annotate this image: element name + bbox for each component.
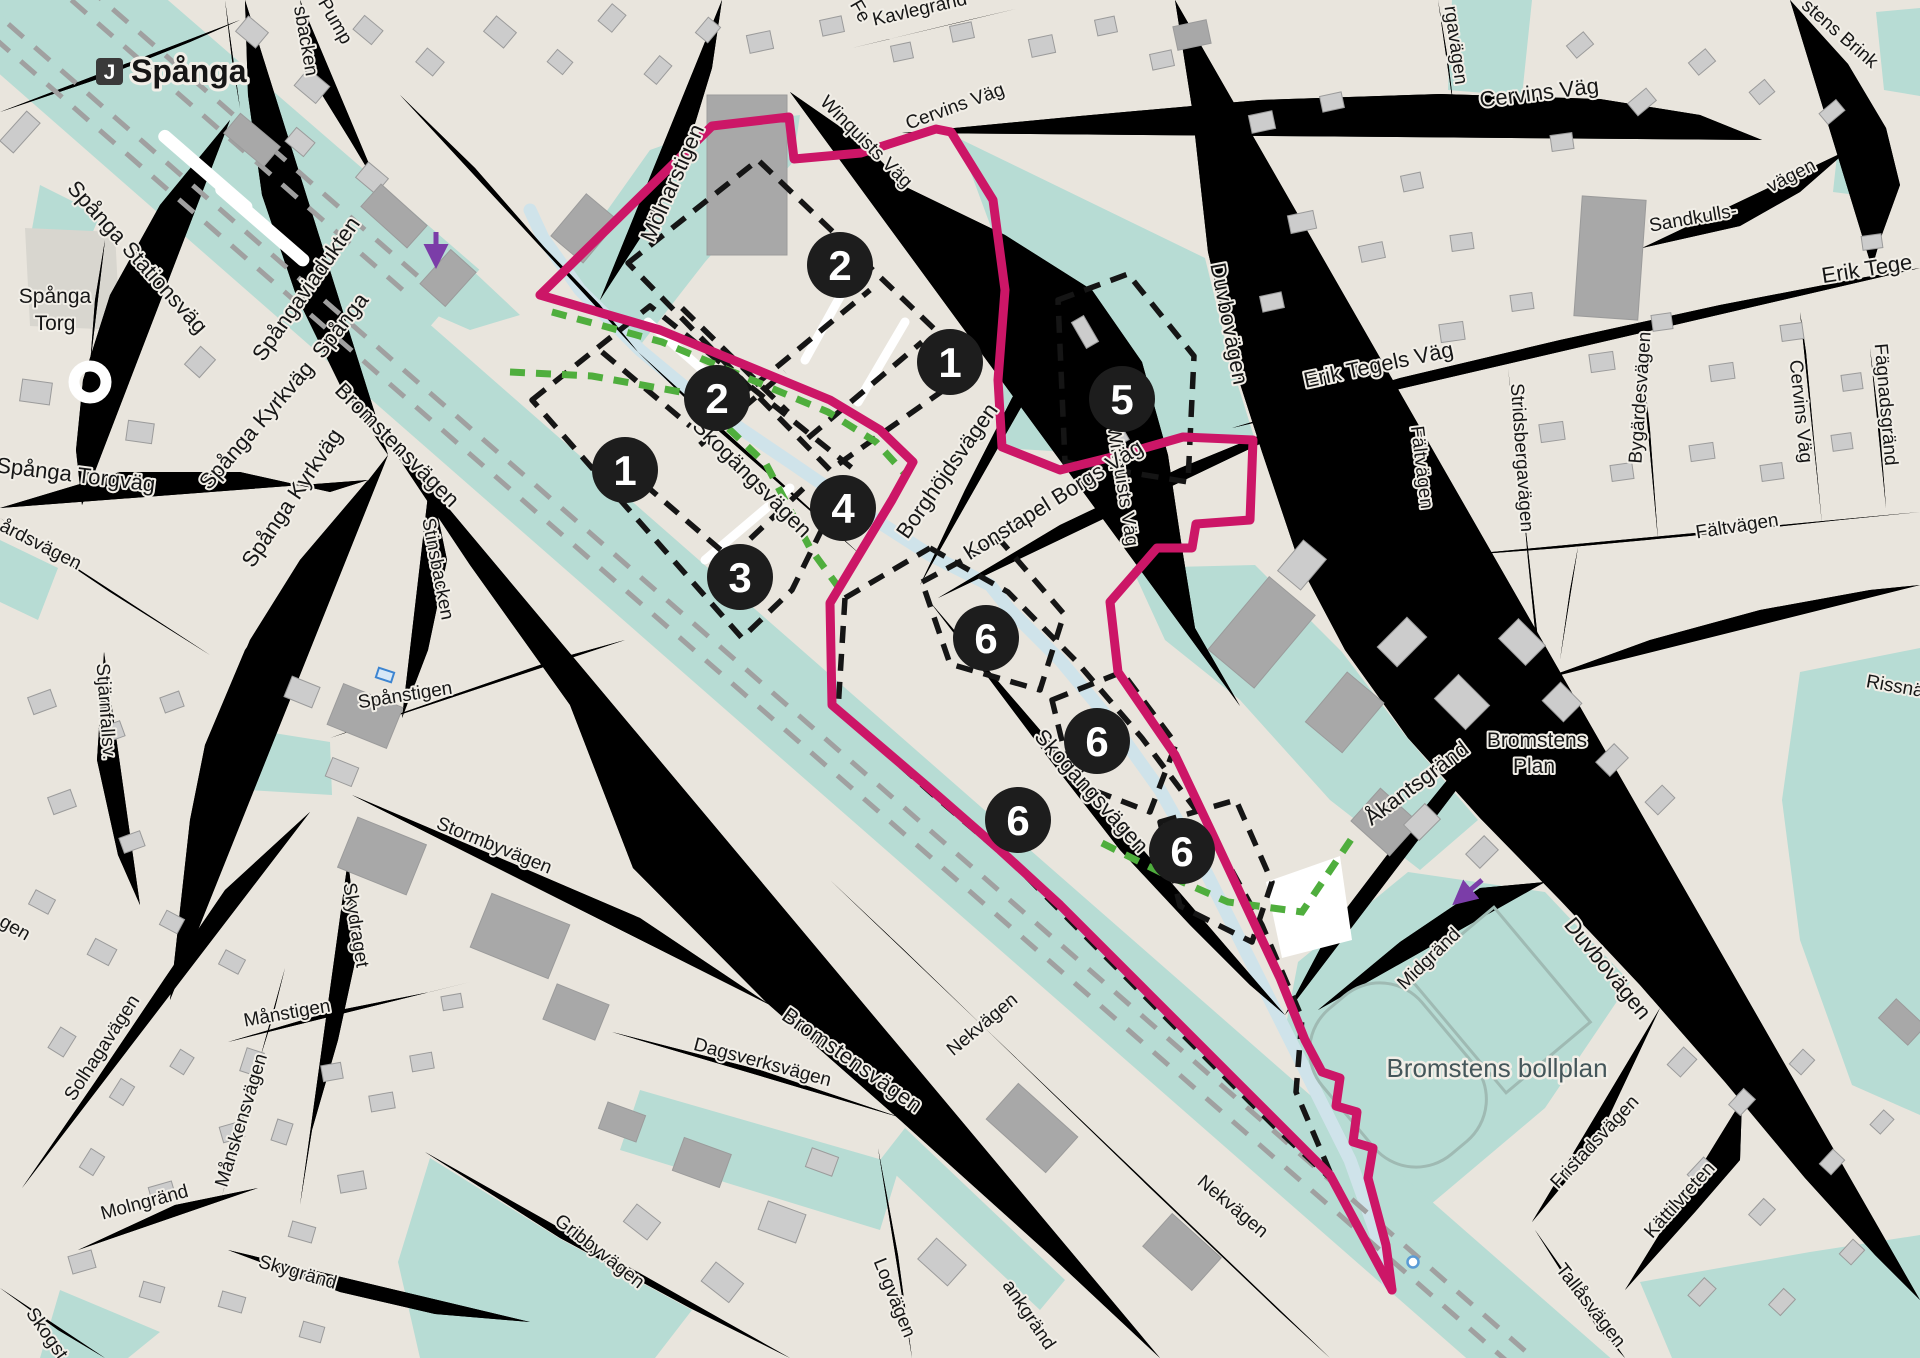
marker-3: 3 xyxy=(707,544,773,610)
marker-6-c: 6 xyxy=(985,787,1051,853)
svg-text:5: 5 xyxy=(1110,376,1133,423)
place-label-bromstens-bollplan: Bromstens bollplan xyxy=(1386,1053,1607,1083)
svg-text:6: 6 xyxy=(1170,828,1193,875)
svg-text:6: 6 xyxy=(974,615,997,662)
marker-4: 4 xyxy=(810,475,876,541)
marker-6-b: 6 xyxy=(1064,708,1130,774)
svg-text:6: 6 xyxy=(1006,797,1029,844)
place-label-spanga-torg-1: Spånga xyxy=(19,285,92,308)
svg-text:2: 2 xyxy=(828,242,851,289)
svg-text:1: 1 xyxy=(613,447,636,494)
marker-6-d: 6 xyxy=(1149,818,1215,884)
svg-text:6: 6 xyxy=(1085,718,1108,765)
svg-text:3: 3 xyxy=(728,554,751,601)
map-canvas: Spånga Stationsväg Spånga Torg Spånga To… xyxy=(0,0,1920,1358)
marker-2-left: 2 xyxy=(684,365,750,431)
marker-5: 5 xyxy=(1089,366,1155,432)
station-name: Spånga xyxy=(131,53,247,89)
marker-1-top: 1 xyxy=(917,329,983,395)
marker-1-left: 1 xyxy=(592,437,658,503)
svg-text:4: 4 xyxy=(831,485,855,532)
station-badge: J Spånga xyxy=(96,53,247,89)
marker-2-top: 2 xyxy=(807,232,873,298)
svg-text:1: 1 xyxy=(938,339,961,386)
marker-6-a: 6 xyxy=(953,605,1019,671)
place-label-bromstens-plan-1: Bromstens xyxy=(1487,729,1587,752)
spanga-bromsten-plan-map: Spånga Stationsväg Spånga Torg Spånga To… xyxy=(0,0,1920,1358)
place-label-bromstens-plan-2: Plan xyxy=(1513,755,1555,778)
place-label-spanga-torg-2: Torg xyxy=(35,312,76,335)
svg-text:2: 2 xyxy=(705,375,728,422)
point-marker-icon xyxy=(1408,1257,1419,1268)
commuter-rail-letter: J xyxy=(104,61,116,84)
